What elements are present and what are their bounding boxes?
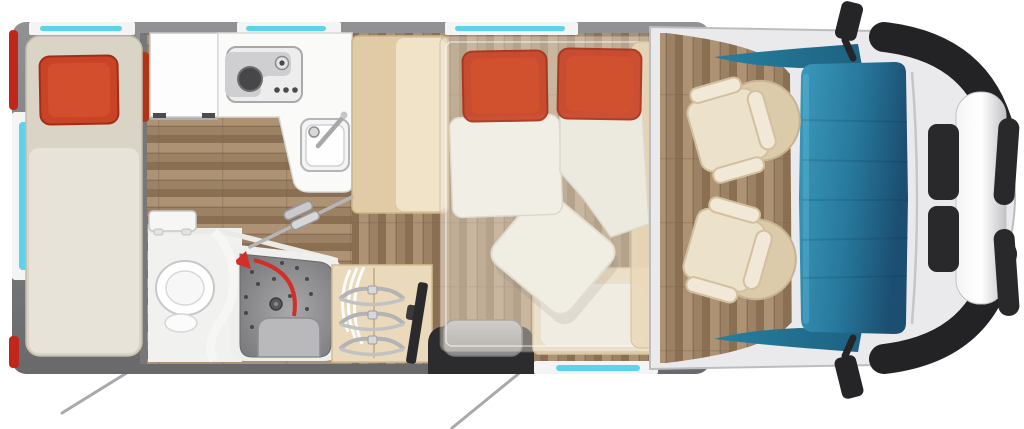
rear-bed (26, 36, 149, 356)
shower (233, 251, 333, 357)
fridge-hinge-left (153, 113, 166, 118)
bed-pillow (39, 55, 118, 124)
windshield-glass (799, 62, 908, 334)
window-top-1 (29, 22, 135, 35)
floorplan-canvas (0, 0, 1024, 429)
bench-backrest (396, 38, 446, 211)
window-bottom (534, 361, 658, 374)
sideboard-bench (352, 36, 448, 213)
tail-light-accent-top (9, 30, 18, 110)
toilet-base (165, 314, 197, 332)
cab (650, 0, 1020, 400)
drop-down-bed (440, 36, 658, 352)
window-glass (40, 26, 122, 31)
leader-line-left (62, 369, 133, 413)
tail-light-accent-bottom (9, 336, 19, 368)
cassette-step (149, 211, 196, 235)
stove-knobs (274, 87, 298, 93)
toilet-seat (166, 271, 204, 305)
stove (225, 47, 302, 102)
pillow-highlight (48, 62, 111, 117)
fridge-hinge-right (202, 113, 215, 118)
windshield (799, 62, 908, 334)
grille-vent-top (928, 124, 959, 200)
burner-large (238, 67, 262, 91)
sink-drain (309, 127, 319, 137)
sink (301, 112, 349, 172)
window-glass (455, 26, 565, 31)
leader-lines (62, 366, 528, 428)
bed-sheet (29, 148, 139, 353)
window-top-3 (445, 22, 578, 35)
window-glass (246, 26, 326, 31)
window-glass (556, 365, 640, 371)
motorhome-floorplan (0, 0, 1024, 429)
leader-line-middle (452, 366, 528, 428)
fridge (150, 33, 218, 119)
shower-seat (258, 318, 320, 357)
grille-vent-bottom (928, 206, 959, 272)
duvet-left (449, 114, 562, 218)
